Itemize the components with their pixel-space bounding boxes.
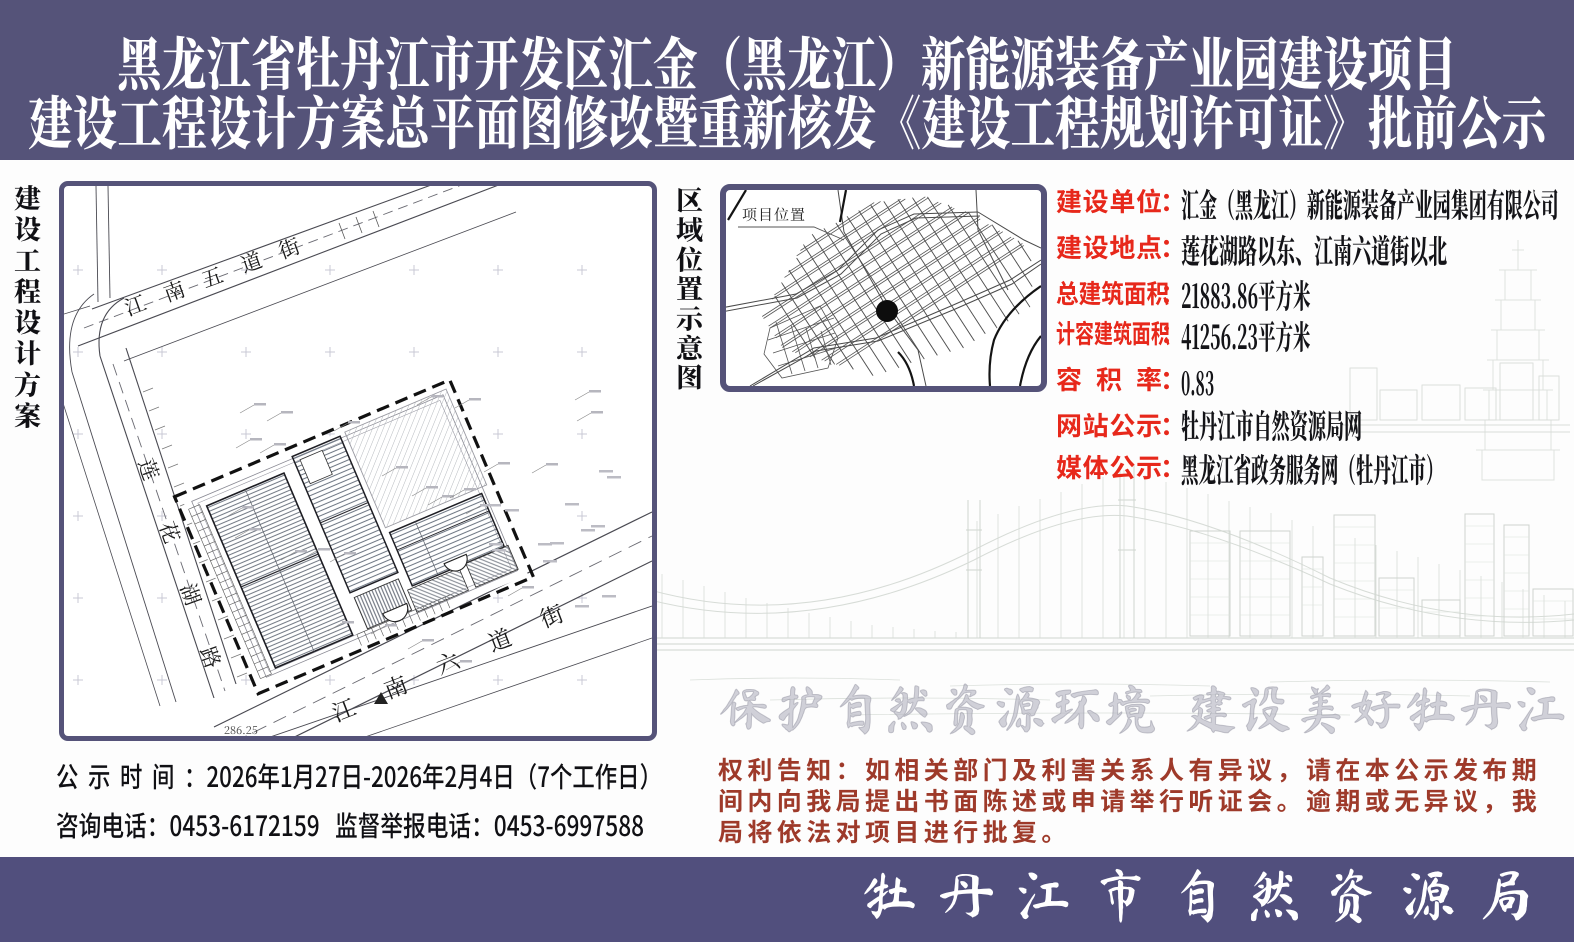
svg-text:南: 南	[159, 273, 189, 308]
svg-text:路: 路	[193, 642, 228, 672]
svg-text:江: 江	[327, 689, 360, 728]
svg-text:项目位置: 项目位置	[742, 204, 806, 225]
svg-text:六: 六	[431, 642, 464, 681]
svg-text:江: 江	[120, 287, 150, 322]
svg-text:湖: 湖	[173, 579, 208, 609]
svg-text:道: 道	[236, 244, 266, 279]
svg-text:莲: 莲	[131, 454, 166, 484]
svg-text:286.25: 286.25	[224, 722, 258, 736]
svg-text:街: 街	[535, 595, 568, 634]
svg-text:五: 五	[197, 259, 227, 294]
svg-text:花: 花	[152, 517, 187, 547]
svg-text:道: 道	[483, 619, 516, 658]
svg-text:街: 街	[274, 230, 304, 265]
